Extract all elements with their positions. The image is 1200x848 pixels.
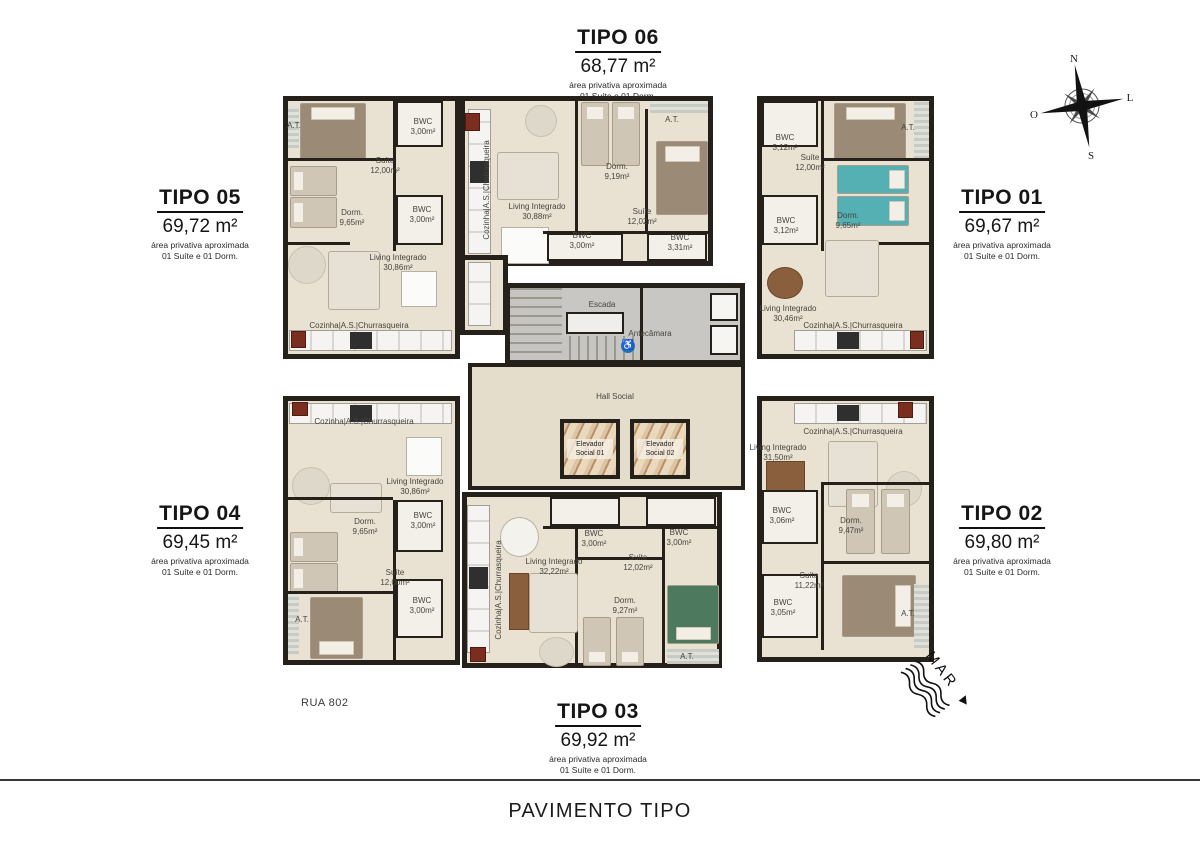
room-label-suite: Suíte12,00m² (795, 153, 824, 173)
unit-note1: área privativa aproximada (953, 240, 1051, 250)
technical-area (914, 101, 929, 159)
unit-note1: área privativa aproximada (569, 80, 667, 90)
bed (290, 563, 338, 594)
room-label-bwc: BWC3,00m² (667, 528, 692, 548)
wall (662, 529, 665, 668)
room-label-suite: Suíte11,22m² (795, 571, 824, 591)
compass-north-label: N (1070, 53, 1078, 65)
room-label-bwc: BWC3,00m² (582, 529, 607, 549)
unit-note2: 01 Suíte e 01 Dorm. (580, 91, 656, 101)
wall (575, 101, 578, 233)
bed (581, 102, 609, 166)
room-label-kitchen: Cozinha|A.S.|Churrasqueira (803, 321, 902, 331)
sea-direction-indicator: MAR (898, 650, 974, 726)
room-label-suite: Suíte12,02m² (623, 553, 652, 573)
bed (834, 103, 906, 161)
kitchen-counter (468, 262, 491, 326)
wall (821, 101, 824, 251)
dining-table (767, 267, 803, 299)
room-label-bwc: BWC3,06m² (770, 506, 795, 526)
stove (469, 567, 488, 589)
room-label-kitchen: Cozinha|A.S.|Churrasqueira (482, 140, 492, 239)
bed (667, 585, 719, 644)
unit-info-tipo-03: TIPO 03 69,92 m² área privativa aproxima… (549, 700, 647, 777)
unit-note1: área privativa aproximada (151, 240, 249, 250)
barbecue-grill (470, 647, 486, 662)
room-label-antechamber: Antecâmara (628, 329, 671, 339)
unit-name: TIPO 02 (959, 502, 1045, 529)
room-label-living: Living Integrado30,88m² (509, 202, 566, 222)
wall (288, 497, 393, 500)
stove (837, 405, 859, 421)
room-label-bwc: BWC3,00m² (411, 511, 436, 531)
room-label-kitchen: Cozinha|A.S.|Churrasqueira (314, 417, 413, 427)
unit-info-tipo-06: TIPO 06 68,77 m² área privativa aproxima… (569, 26, 667, 103)
kitchen-counter (794, 330, 927, 351)
unit-area: 68,77 m² (569, 56, 667, 78)
room-label-bwc: BWC3,00m² (411, 117, 436, 137)
stairs (510, 288, 562, 360)
room-label-bwc: BWC3,31m² (668, 233, 693, 253)
unit-note1: área privativa aproximada (549, 754, 647, 764)
elevator-2: Elevador Social 02 (630, 419, 690, 479)
unit-info-tipo-01: TIPO 01 69,67 m² área privativa aproxima… (953, 186, 1051, 263)
unit-area: 69,80 m² (953, 532, 1051, 554)
bed (656, 141, 708, 215)
page-title: PAVIMENTO TIPO (508, 800, 691, 823)
shaft (710, 293, 738, 321)
unit-note2: 01 Suíte e 01 Dorm. (964, 251, 1040, 261)
bed (583, 617, 611, 666)
shaft (710, 325, 738, 355)
unit-info-tipo-04: TIPO 04 69,45 m² área privativa aproxima… (151, 502, 249, 579)
room-label-dorm: Dorm.9,19m² (605, 162, 630, 182)
room-label-suite: Suíte12,00m² (370, 156, 399, 176)
compass-south-label: S (1088, 150, 1094, 161)
room-label-bwc: BWC3,00m² (570, 231, 595, 251)
room-label-bwc: BWC3,12m² (773, 133, 798, 153)
unit-name: TIPO 06 (575, 26, 661, 53)
unit-note2: 01 Suíte e 01 Dorm. (162, 251, 238, 261)
wall (821, 158, 929, 161)
floor-plan-canvas: TIPO 05 69,72 m² área privativa aproxima… (0, 0, 1200, 848)
sea-label: MAR (922, 650, 961, 692)
room-label-at: A.T. (295, 615, 309, 625)
bed (300, 103, 366, 161)
compass-rose: N L O S (1027, 51, 1137, 161)
sea-arrow-icon (959, 695, 971, 707)
room-label-dorm: Dorm.9,47m² (839, 516, 864, 536)
unit-area: 69,67 m² (953, 216, 1051, 238)
unit-note1: área privativa aproximada (151, 556, 249, 566)
room-label-at: A.T. (680, 652, 694, 662)
room-label-bwc: BWC3,05m² (771, 598, 796, 618)
barbecue-grill (898, 402, 913, 418)
room-label-bwc: BWC3,00m² (410, 596, 435, 616)
compass-east-label: L (1127, 92, 1134, 104)
bed (290, 197, 337, 228)
wall (640, 288, 643, 360)
sofa (529, 573, 578, 633)
unit-area: 69,72 m² (151, 216, 249, 238)
room-label-kitchen: Cozinha|A.S.|Churrasqueira (494, 540, 504, 639)
wall (288, 591, 393, 594)
bed (842, 575, 916, 637)
wall (821, 561, 929, 564)
unit-area: 69,45 m² (151, 532, 249, 554)
elevator-2-label: Elevador Social 02 (637, 439, 683, 459)
accessibility-icon: ♿ (621, 339, 635, 353)
sofa (497, 152, 559, 200)
unit-note1: área privativa aproximada (953, 556, 1051, 566)
room-label-stairs: Escada (589, 300, 616, 310)
stove (837, 332, 859, 349)
technical-area (914, 584, 929, 648)
sideboard (509, 573, 529, 630)
sofa (825, 240, 879, 297)
bed (837, 165, 909, 194)
room-label-living: Living Integrado31,50m² (750, 443, 807, 463)
dining-table (401, 271, 437, 307)
bathroom-floor (550, 497, 620, 526)
bathroom-floor (646, 497, 716, 526)
unit-plan-tipo-06-kitchen-wing (460, 255, 508, 335)
wall (821, 484, 824, 650)
social-hall: Elevador Social 01 Elevador Social 02 (468, 363, 745, 490)
room-label-bwc: BWC3,12m² (774, 216, 799, 236)
bed (612, 102, 640, 166)
room-label-suite: Suíte12,00m² (380, 568, 409, 588)
unit-note2: 01 Suíte e 01 Dorm. (162, 567, 238, 577)
unit-name: TIPO 01 (959, 186, 1045, 213)
compass-west-label: O (1030, 109, 1038, 121)
room-label-kitchen: Cozinha|A.S.|Churrasqueira (309, 321, 408, 331)
bed (616, 617, 644, 666)
room-label-at: A.T. (287, 121, 301, 131)
room-label-bwc: BWC3,00m² (410, 205, 435, 225)
rug (525, 105, 557, 137)
room-label-at: A.T. (901, 123, 915, 133)
stair-landing (566, 312, 624, 334)
room-label-at: A.T. (665, 115, 679, 125)
room-label-hall: Hall Social (596, 392, 634, 402)
elevator-1: Elevador Social 01 (560, 419, 620, 479)
unit-note2: 01 Suíte e 01 Dorm. (560, 765, 636, 775)
unit-area: 69,92 m² (549, 730, 647, 752)
barbecue-grill (465, 113, 480, 131)
unit-info-tipo-02: TIPO 02 69,80 m² área privativa aproxima… (953, 502, 1051, 579)
unit-name: TIPO 04 (157, 502, 243, 529)
barbecue-grill (291, 331, 306, 348)
elevator-1-label: Elevador Social 01 (567, 439, 613, 459)
dining-table (500, 517, 539, 557)
room-label-living: Living Integrado30,86m² (387, 477, 444, 497)
room-label-dorm: Dorm.9,65m² (353, 517, 378, 537)
dining-table (406, 437, 442, 476)
unit-name: TIPO 05 (157, 186, 243, 213)
footer-divider (0, 779, 1200, 781)
wall (821, 482, 929, 485)
barbecue-grill (910, 331, 924, 349)
wall (543, 526, 722, 529)
bed (310, 597, 363, 659)
room-label-suite: Suíte12,02m² (627, 207, 656, 227)
stove (350, 332, 372, 349)
bed (290, 532, 338, 562)
unit-name: TIPO 03 (555, 700, 641, 727)
unit-note2: 01 Suíte e 01 Dorm. (964, 567, 1040, 577)
bed (881, 489, 910, 554)
barbecue-grill (292, 402, 308, 416)
dining-table (501, 227, 549, 264)
room-label-kitchen: Cozinha|A.S.|Churrasqueira (803, 427, 902, 437)
wall (288, 242, 350, 245)
unit-info-tipo-05: TIPO 05 69,72 m² área privativa aproxima… (151, 186, 249, 263)
room-label-dorm: Dorm.9,65m² (340, 208, 365, 228)
street-label: RUA 802 (301, 697, 349, 709)
rug (288, 246, 326, 284)
room-label-living: Living Integrado32,22m² (526, 557, 583, 577)
wave-icon (899, 670, 938, 718)
bed (290, 166, 337, 196)
room-label-dorm: Dorm.9,65m² (836, 211, 861, 231)
room-label-living: Living Integrado30,86m² (370, 253, 427, 273)
rug (539, 637, 574, 667)
room-label-dorm: Dorm.9,27m² (613, 596, 638, 616)
room-label-at: A.T. (901, 609, 915, 619)
